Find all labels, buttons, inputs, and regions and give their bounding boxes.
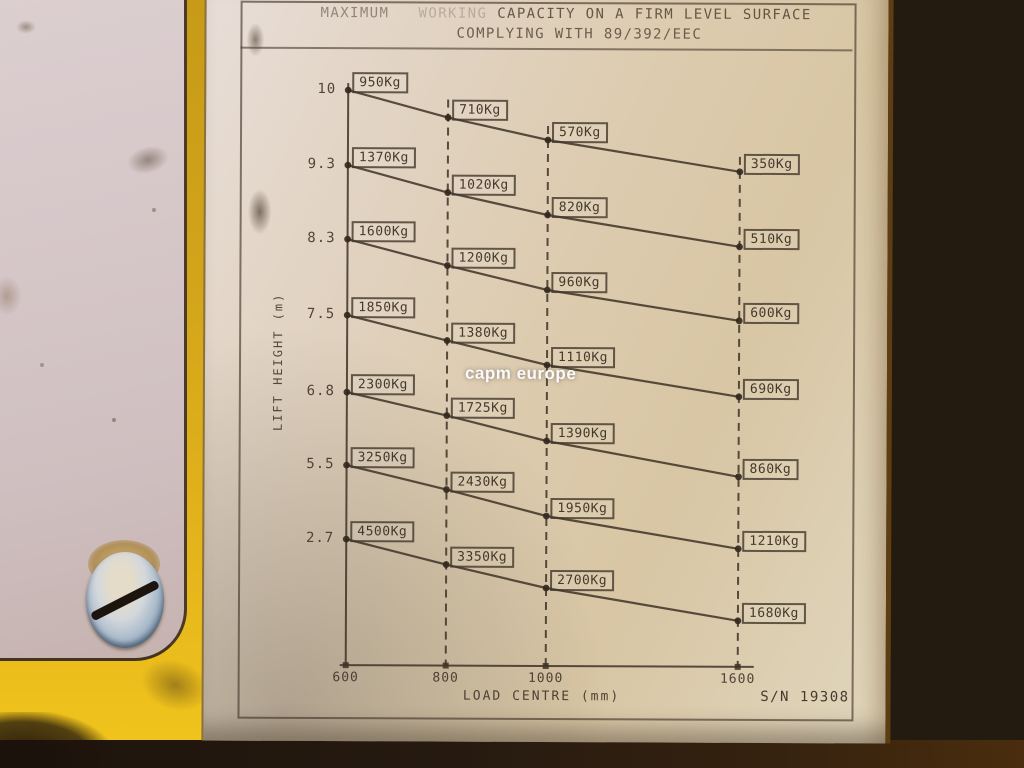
y-axis-tick-label: 5.5 (297, 456, 335, 472)
photo-of-capacity-plate: MAXIMUM WORKING CAPACITY ON A FIRM LEVEL… (0, 0, 1024, 768)
capacity-plate: MAXIMUM WORKING CAPACITY ON A FIRM LEVEL… (201, 0, 893, 743)
capacity-label: 1950Kg (550, 498, 614, 519)
capacity-label: 2700Kg (550, 570, 614, 591)
stain (123, 141, 173, 179)
slotted-screw-icon (86, 552, 164, 648)
x-axis-tick-label: 800 (422, 670, 470, 685)
capacity-label: 860Kg (743, 459, 799, 480)
machine-left-panel (0, 0, 187, 661)
machine-body-orange-right (886, 0, 1024, 748)
watermark: capm europe (465, 364, 576, 384)
dirt-blotch (0, 712, 110, 768)
capacity-label: 1380Kg (451, 323, 515, 344)
capacity-label: 350Kg (744, 154, 800, 175)
capacity-label: 4500Kg (350, 521, 414, 542)
capacity-label: 960Kg (551, 272, 607, 293)
bottom-shadow-strip (0, 740, 1024, 768)
capacity-label: 1680Kg (742, 603, 806, 624)
y-axis-tick-label: 7.5 (297, 306, 335, 322)
y-axis-tick-label: 8.3 (298, 230, 336, 246)
capacity-label: 1390Kg (551, 423, 615, 444)
capacity-label: 3250Kg (351, 447, 415, 468)
stain (0, 276, 22, 316)
capacity-label: 570Kg (552, 122, 608, 143)
capacity-label: 1850Kg (351, 297, 415, 318)
capacity-label: 710Kg (452, 100, 508, 121)
x-axis-title: LOAD CENTRE (mm) (422, 688, 662, 704)
capacity-label: 3350Kg (450, 547, 514, 568)
capacity-label: 1370Kg (352, 147, 416, 168)
capacity-label: 1200Kg (451, 248, 515, 269)
x-axis-tick-label: 1000 (522, 671, 570, 686)
screw-slot (90, 580, 160, 622)
stain (16, 20, 36, 34)
speck (112, 418, 116, 422)
capacity-label: 2430Kg (450, 472, 514, 493)
capacity-label: 510Kg (744, 229, 800, 250)
capacity-label: 1600Kg (352, 221, 416, 242)
y-axis-title: LIFT HEIGHT (m) (271, 276, 288, 448)
y-axis-tick-label: 6.8 (297, 383, 335, 399)
capacity-label: 600Kg (743, 303, 799, 324)
capacity-label: 2300Kg (351, 374, 415, 395)
x-axis-tick-label: 1600 (714, 672, 762, 687)
capacity-label: 820Kg (552, 197, 608, 218)
capacity-label: 1020Kg (452, 175, 516, 196)
y-axis-tick-label: 2.7 (296, 530, 334, 546)
x-axis-tick-label: 600 (322, 670, 370, 685)
serial-number: S/N 19308 (690, 689, 850, 706)
y-axis-tick-label: 10 (298, 81, 336, 97)
capacity-label: 1725Kg (451, 398, 515, 419)
y-axis-tick-label: 9.3 (298, 156, 336, 172)
capacity-label: 690Kg (743, 379, 799, 400)
capacity-label: 1210Kg (742, 531, 806, 552)
capacity-label: 950Kg (352, 72, 408, 93)
